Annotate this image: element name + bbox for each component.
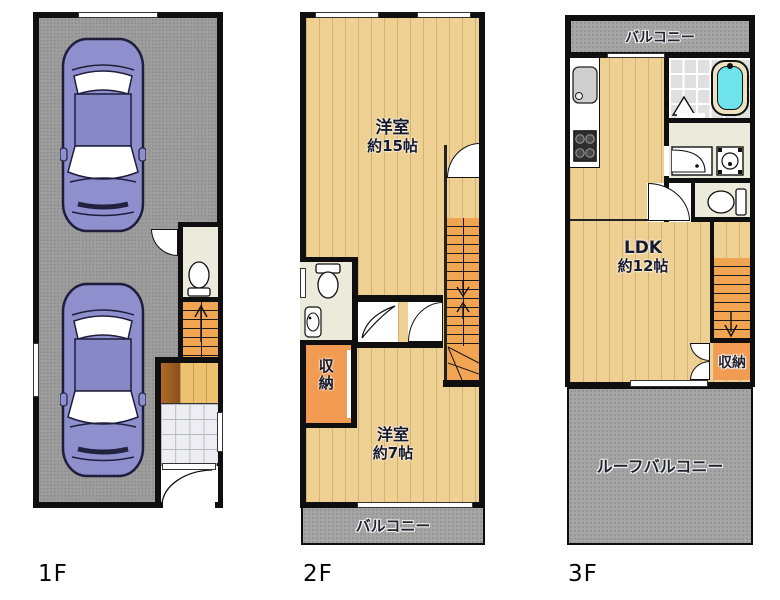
- toilet-icon: [314, 262, 342, 300]
- floor-label-1f: 1F: [38, 561, 68, 587]
- room15-label: 洋室 約15帖: [330, 118, 455, 156]
- hall-floor-light: [180, 363, 218, 403]
- genkan-side-window: [217, 412, 223, 452]
- stairs-up-arrow-icon: [194, 304, 208, 344]
- kitchen-sink-icon: [572, 66, 598, 104]
- room15-window-left: [315, 12, 379, 18]
- balcony-2f-label: バルコニー: [301, 515, 485, 536]
- balcony-3f-label: バルコニー: [570, 27, 750, 47]
- stairs-down-arrow-icon: [724, 310, 738, 338]
- ldk-label: LDK 約12帖: [598, 238, 688, 276]
- floor-plan-canvas: 洋室 約15帖: [0, 0, 780, 600]
- garage-left-window: [33, 343, 39, 397]
- floor-label-3f: 3F: [568, 561, 598, 587]
- garage-shutter-window: [78, 12, 158, 18]
- room7-label: 洋室 約7帖: [333, 426, 453, 463]
- storage-2f-label: 収納: [316, 358, 334, 392]
- ldk-bottom-window: [630, 380, 708, 387]
- stairs-2f-winder: [447, 346, 479, 380]
- hall-floor-dark: [161, 363, 180, 403]
- stairs-up-arrow-icon: [455, 301, 471, 321]
- stairs-down-arrow-icon: [455, 278, 471, 298]
- toilet-door-leaf-arc: [358, 303, 398, 341]
- stove-icon: [573, 130, 597, 162]
- bathtub-icon: [711, 60, 749, 116]
- ldk-top-window: [607, 53, 665, 58]
- floor-label-2f: 2F: [303, 561, 333, 587]
- washbasin-icon: [671, 146, 713, 176]
- car-icon: [60, 281, 146, 479]
- room15-window-right: [417, 12, 471, 18]
- entrance-door-leaf: [162, 463, 216, 470]
- car-icon: [60, 36, 146, 234]
- toilet-icon: [706, 186, 748, 218]
- roof-balcony-label: ルーフバルコニー: [567, 453, 753, 477]
- genkan-tile-floor: [161, 403, 218, 463]
- toilet-icon: [186, 261, 212, 299]
- entrance-door-arc: [160, 468, 216, 506]
- washing-machine-icon: [716, 146, 744, 176]
- hand-sink-icon: [304, 306, 322, 338]
- storage-3f-label: 収納: [712, 352, 752, 372]
- toilet-window-2f: [300, 268, 306, 298]
- room7-balcony-window: [357, 502, 473, 508]
